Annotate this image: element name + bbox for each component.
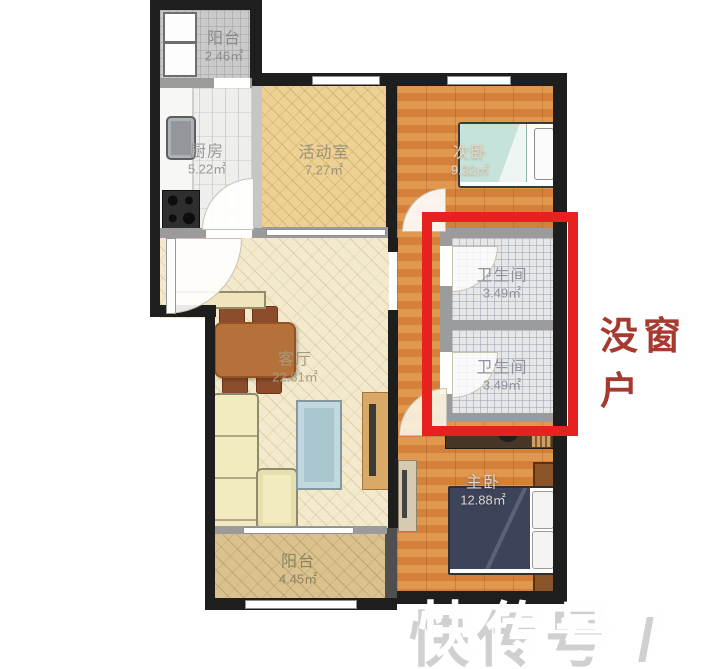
master-bed-pillow: [532, 531, 554, 569]
room-area: 4.45㎡: [279, 572, 317, 588]
master-tv: [402, 470, 407, 518]
wall-left-top: [150, 0, 160, 317]
floor-plan-image: { "rooms": { "balcony_top": {"name": "阳台…: [0, 0, 720, 629]
room-label-second-bedroom: 次卧 9.32㎡: [451, 144, 489, 179]
armchair: [256, 468, 298, 530]
no-window-note: 没窗户: [600, 305, 720, 415]
room-label-master-bedroom: 主卧 12.88㎡: [460, 474, 506, 509]
sofa: [212, 393, 259, 531]
room-label-balcony-bottom: 阳台 4.45㎡: [279, 553, 317, 588]
wall-balcony-master-divider: [385, 528, 397, 598]
bed-pillow: [534, 128, 554, 180]
coffee-table-rug: [296, 400, 342, 490]
room-label-activity: 活动室 7.27㎡: [298, 144, 349, 179]
tv-screen: [369, 404, 376, 476]
entry-door-leaf: [166, 238, 176, 314]
room-name: 厨房: [188, 143, 226, 162]
stove: [162, 190, 200, 230]
door-gap: [214, 78, 250, 88]
wall-left-bottom: [205, 305, 215, 610]
washing-machine: [163, 12, 197, 43]
wall-balcony-right: [250, 0, 262, 88]
room-area: 22.81㎡: [272, 370, 318, 386]
storage-cabinet: [163, 42, 197, 77]
window-activity-living: [266, 229, 386, 236]
master-dresser: [398, 460, 417, 532]
room-name: 次卧: [451, 144, 489, 163]
window-activity-north: [312, 76, 380, 85]
master-bed-pillow: [532, 491, 554, 529]
room-name: 阳台: [279, 553, 317, 572]
wall-activity-right: [386, 73, 397, 238]
wall-living-right: [388, 310, 398, 528]
window-bedroom-north: [447, 76, 511, 85]
wall-living-right-stub: [388, 238, 398, 252]
room-area: 12.88㎡: [460, 493, 506, 509]
window-balcony-south: [245, 600, 357, 609]
window-living-balcony: [243, 527, 354, 534]
tv-cabinet: [362, 392, 391, 490]
room-area: 9.32㎡: [451, 163, 489, 179]
room-name: 活动室: [298, 144, 349, 163]
room-name: 主卧: [460, 474, 506, 493]
wall-north: [262, 73, 565, 86]
watermark: 快传号 /: [418, 582, 671, 669]
room-area: 2.46㎡: [205, 49, 243, 65]
room-area: 7.27㎡: [298, 163, 349, 179]
room-name: 客厅: [272, 351, 318, 370]
room-area: 5.22㎡: [188, 162, 226, 178]
highlight-box: [422, 212, 578, 436]
room-label-living: 客厅 22.81㎡: [272, 351, 318, 386]
room-label-balcony-top: 阳台 2.46㎡: [205, 30, 243, 65]
wall-top: [150, 0, 262, 10]
room-name: 阳台: [205, 30, 243, 49]
room-label-kitchen: 厨房 5.22㎡: [188, 143, 226, 178]
